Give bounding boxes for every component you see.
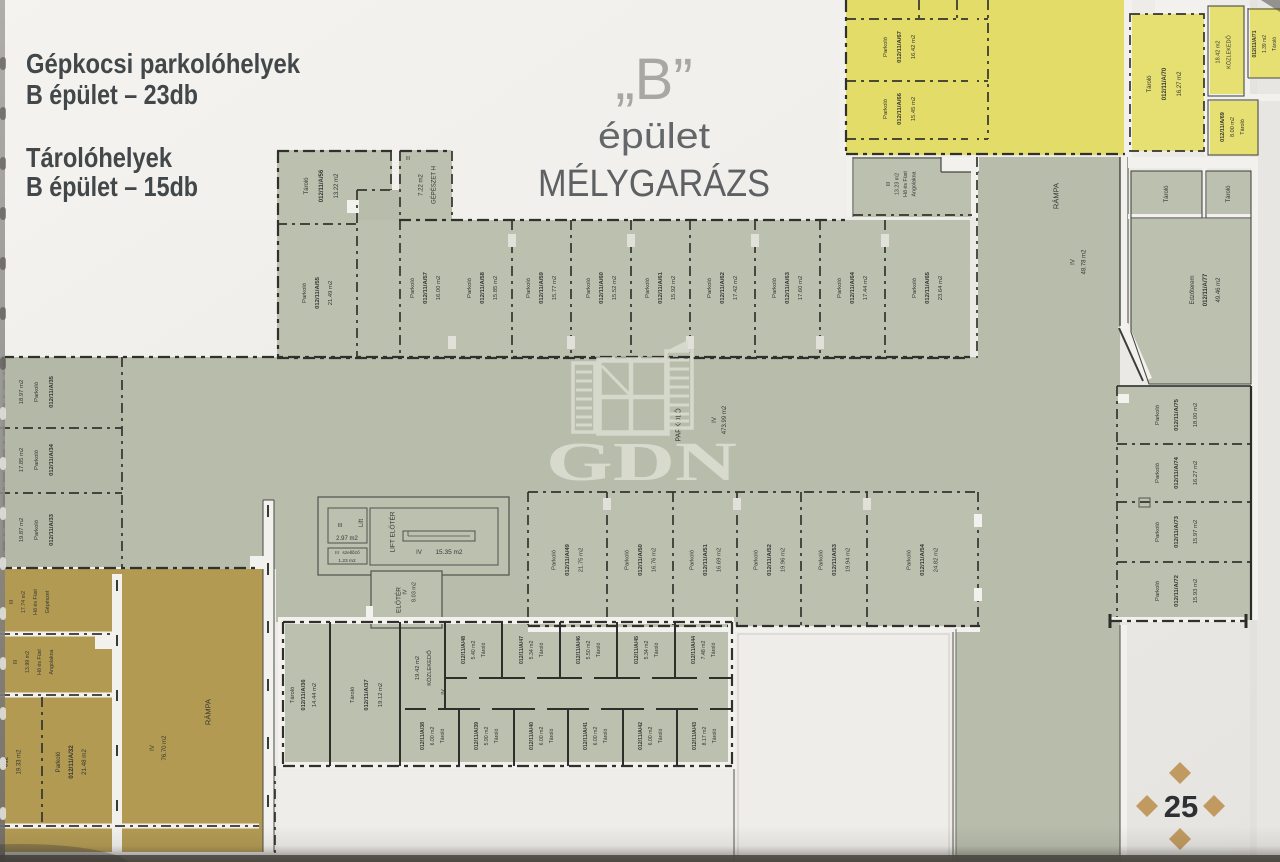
svg-text:012/11/A/73: 012/11/A/73: [1174, 515, 1180, 547]
svg-text:RÁMPA: RÁMPA: [204, 699, 213, 725]
svg-text:Hő és Füst: Hő és Füst: [37, 649, 43, 675]
svg-text:012/11/A/75: 012/11/A/75: [1174, 398, 1180, 430]
svg-text:012/11/A/72: 012/11/A/72: [1174, 574, 1180, 606]
svg-text:Parkoló: Parkoló: [754, 549, 760, 570]
svg-text:15.77 m2: 15.77 m2: [552, 276, 558, 301]
svg-text:Angolakna: Angolakna: [912, 171, 918, 196]
svg-text:012/11/A/54: 012/11/A/54: [920, 543, 926, 575]
svg-text:Parkoló: Parkoló: [526, 277, 532, 298]
svg-text:15.52 m2: 15.52 m2: [612, 276, 618, 301]
svg-text:012/11/A/57: 012/11/A/57: [423, 271, 429, 303]
svg-text:012/11/A/50: 012/11/A/50: [638, 543, 644, 575]
svg-text:1.39 m2: 1.39 m2: [1262, 35, 1268, 53]
svg-text:GDN: GDN: [546, 431, 737, 492]
svg-text:8.00 m2: 8.00 m2: [1230, 117, 1236, 137]
svg-text:012/11/A/66: 012/11/A/66: [897, 92, 903, 124]
svg-text:15.85 m2: 15.85 m2: [493, 276, 499, 301]
svg-text:012/11/A/37: 012/11/A/37: [364, 679, 370, 710]
svg-text:473.99 m2: 473.99 m2: [722, 405, 728, 434]
svg-text:III: III: [886, 182, 892, 186]
svg-text:21.49 m2: 21.49 m2: [328, 281, 334, 306]
svg-text:012/11/A/46: 012/11/A/46: [576, 636, 582, 664]
svg-text:Tároló: Tároló: [1272, 37, 1278, 51]
svg-text:6.00 m2: 6.00 m2: [648, 727, 654, 746]
svg-text:012/11/A/45: 012/11/A/45: [634, 636, 640, 664]
svg-text:Tároló: Tároló: [539, 643, 545, 658]
svg-text:19.12 m2: 19.12 m2: [378, 683, 384, 707]
svg-text:Parkoló: Parkoló: [302, 282, 308, 303]
svg-text:Parkoló: Parkoló: [645, 277, 651, 298]
svg-text:16.76 m2: 16.76 m2: [652, 548, 658, 573]
svg-text:Hő és Füst: Hő és Füst: [903, 171, 909, 197]
svg-text:21.48 m2: 21.48 m2: [81, 749, 88, 775]
svg-text:Gépkocsi parkolóhelyek: Gépkocsi parkolóhelyek: [26, 48, 300, 79]
svg-text:012/11/A/34: 012/11/A/34: [49, 443, 55, 475]
svg-text:19.94 m2: 19.94 m2: [846, 548, 852, 573]
svg-text:Tároló: Tároló: [1226, 185, 1232, 203]
svg-text:III: III: [338, 523, 343, 529]
svg-text:Tároló: Tároló: [1147, 75, 1153, 93]
svg-text:Parkoló: Parkoló: [586, 277, 592, 298]
svg-text:012/11/A/43: 012/11/A/43: [692, 722, 698, 750]
svg-text:Parkoló: Parkoló: [34, 519, 40, 540]
svg-text:13.22 m2: 13.22 m2: [334, 173, 340, 199]
svg-text:012/11/A/38: 012/11/A/38: [420, 722, 426, 750]
svg-text:012/11/A/55: 012/11/A/55: [315, 276, 321, 308]
svg-text:17.42 m2: 17.42 m2: [733, 276, 739, 301]
svg-text:76.70 m2: 76.70 m2: [162, 735, 168, 761]
svg-text:Parkoló: Parkoló: [55, 751, 62, 773]
svg-text:17.74 m2: 17.74 m2: [21, 591, 27, 613]
svg-text:III: III: [9, 600, 15, 604]
svg-text:012/11/A/47: 012/11/A/47: [519, 636, 525, 664]
svg-text:Tároló: Tároló: [1164, 185, 1170, 203]
svg-text:III: III: [406, 156, 410, 162]
svg-text:012/11/A/65: 012/11/A/65: [925, 271, 931, 303]
svg-text:Parkoló: Parkoló: [625, 549, 631, 570]
svg-text:IV: IV: [402, 589, 408, 595]
svg-text:Parkoló: Parkoló: [552, 549, 558, 570]
svg-text:15.93 m2: 15.93 m2: [1193, 579, 1199, 604]
svg-text:5.34 m2: 5.34 m2: [644, 641, 650, 660]
svg-text:19.42 m2: 19.42 m2: [415, 656, 421, 680]
svg-text:5.90 m2: 5.90 m2: [484, 727, 490, 746]
svg-text:szellőző: szellőző: [342, 550, 360, 556]
svg-text:8.03 m2: 8.03 m2: [411, 582, 417, 602]
svg-text:012/11/A/32: 012/11/A/32: [68, 745, 75, 779]
svg-text:Tároló: Tároló: [1240, 119, 1246, 135]
svg-text:Parkoló: Parkoló: [837, 277, 843, 298]
svg-text:012/11/A/77: 012/11/A/77: [1203, 273, 1209, 306]
svg-text:„B”: „B”: [615, 47, 692, 112]
svg-text:IV: IV: [1071, 259, 1077, 265]
svg-text:012/11/A/33: 012/11/A/33: [49, 513, 55, 545]
svg-text:Parkoló: Parkoló: [1155, 462, 1161, 483]
svg-text:Parkoló: Parkoló: [467, 277, 473, 298]
svg-text:Tároló: Tároló: [549, 729, 555, 744]
svg-text:2.97 m2: 2.97 m2: [336, 536, 358, 542]
svg-text:Tároló: Tároló: [711, 643, 717, 658]
svg-text:012/11/A/62: 012/11/A/62: [720, 271, 726, 303]
svg-text:012/11/A/42: 012/11/A/42: [638, 722, 644, 750]
svg-text:Parkoló: Parkoló: [912, 277, 918, 298]
svg-text:49.46 m2: 49.46 m2: [1216, 277, 1222, 303]
svg-text:Tároló: Tároló: [712, 729, 718, 744]
svg-text:Parkoló: Parkoló: [1155, 521, 1161, 542]
svg-text:012/11/A/58: 012/11/A/58: [480, 271, 486, 303]
svg-text:Tároló: Tároló: [603, 729, 609, 744]
svg-text:012/11/A/40: 012/11/A/40: [529, 722, 535, 750]
svg-text:Parkoló: Parkoló: [1155, 580, 1161, 601]
svg-text:16.00 m2: 16.00 m2: [436, 276, 442, 301]
svg-text:15.92 m2: 15.92 m2: [671, 276, 677, 301]
svg-text:III: III: [13, 660, 19, 664]
svg-text:Parkoló: Parkoló: [34, 381, 40, 402]
svg-text:Parkoló: Parkoló: [707, 277, 713, 298]
svg-text:012/11/A/52: 012/11/A/52: [767, 543, 773, 575]
svg-text:Tároló: Tároló: [481, 643, 487, 658]
svg-text:Tárolóhelyek: Tárolóhelyek: [26, 142, 172, 173]
svg-text:16.27 m2: 16.27 m2: [1193, 461, 1199, 486]
svg-text:IV: IV: [712, 417, 718, 423]
svg-text:Hő és Füst: Hő és Füst: [33, 589, 39, 615]
svg-text:Parkoló: Parkoló: [410, 277, 416, 298]
svg-text:III: III: [335, 550, 339, 555]
svg-text:Tároló: Tároló: [350, 687, 356, 703]
svg-text:8.17 m2: 8.17 m2: [702, 727, 708, 746]
svg-text:012/11/A/53: 012/11/A/53: [832, 543, 838, 575]
svg-text:B épület – 23db: B épület – 23db: [26, 79, 198, 110]
svg-text:012/11/A/61: 012/11/A/61: [658, 271, 664, 303]
svg-text:012/11/A/69: 012/11/A/69: [1220, 112, 1226, 142]
svg-text:GÉPÉSZET H: GÉPÉSZET H: [431, 166, 438, 204]
svg-text:1.23 m2: 1.23 m2: [338, 558, 356, 564]
svg-text:RÁMPA: RÁMPA: [1052, 183, 1061, 209]
svg-text:24.82 m2: 24.82 m2: [934, 548, 940, 573]
svg-text:19.96 m2: 19.96 m2: [781, 548, 787, 573]
svg-text:13.23 m2: 13.23 m2: [895, 173, 901, 195]
svg-text:Edzőterem: Edzőterem: [1190, 275, 1196, 304]
svg-text:B épület – 15db: B épület – 15db: [26, 171, 198, 202]
svg-text:012/11/A/48: 012/11/A/48: [461, 636, 467, 664]
svg-text:Tároló: Tároló: [596, 643, 602, 658]
svg-text:13.99 m2: 13.99 m2: [25, 651, 31, 673]
svg-text:IV: IV: [441, 689, 447, 695]
svg-text:012/11/A/51: 012/11/A/51: [703, 543, 709, 575]
svg-text:IV: IV: [150, 745, 156, 751]
svg-text:012/11/A/70: 012/11/A/70: [1162, 67, 1168, 100]
svg-text:Tároló: Tároló: [290, 687, 296, 703]
svg-text:21.75 m2: 21.75 m2: [579, 548, 585, 573]
svg-text:012/11/A/39: 012/11/A/39: [474, 722, 480, 750]
svg-text:KÖZLEKEDŐ: KÖZLEKEDŐ: [1225, 34, 1232, 68]
svg-text:012/11/A/60: 012/11/A/60: [599, 271, 605, 303]
svg-text:épület: épület: [598, 115, 710, 156]
svg-text:6.00 m2: 6.00 m2: [430, 727, 436, 746]
svg-text:012/11/A/71: 012/11/A/71: [1252, 30, 1258, 57]
svg-text:012/11/A/49: 012/11/A/49: [565, 543, 571, 575]
svg-text:18.00 m2: 18.00 m2: [1193, 403, 1199, 428]
svg-text:14.44 m2: 14.44 m2: [312, 683, 318, 707]
svg-text:Tároló: Tároló: [440, 729, 446, 744]
svg-text:Parkoló: Parkoló: [690, 549, 696, 570]
svg-text:7.48 m2: 7.48 m2: [701, 641, 707, 660]
svg-text:17.85 m2: 17.85 m2: [19, 448, 25, 473]
svg-text:15.35 m2: 15.35 m2: [435, 549, 462, 556]
svg-text:Tároló: Tároló: [658, 729, 664, 744]
svg-text:15.97 m2: 15.97 m2: [1193, 520, 1199, 545]
svg-text:Tároló: Tároló: [494, 729, 500, 744]
svg-text:48.78 m2: 48.78 m2: [1082, 249, 1088, 275]
svg-text:012/11/A/36: 012/11/A/36: [301, 679, 307, 711]
svg-text:Tároló: Tároló: [304, 177, 310, 195]
svg-text:Parkoló: Parkoló: [34, 449, 40, 470]
svg-text:012/11/A/56: 012/11/A/56: [319, 169, 325, 202]
svg-text:7.22 m2: 7.22 m2: [419, 174, 425, 196]
svg-text:ELŐTÉR: ELŐTÉR: [393, 587, 402, 613]
svg-text:012/11/A/63: 012/11/A/63: [785, 271, 791, 303]
svg-text:15.45 m2: 15.45 m2: [911, 97, 917, 122]
svg-text:012/11/A/67: 012/11/A/67: [897, 30, 903, 62]
svg-text:5.34 m2: 5.34 m2: [529, 641, 535, 660]
svg-text:16.27 m2: 16.27 m2: [1177, 71, 1183, 97]
svg-text:16.69 m2: 16.69 m2: [717, 548, 723, 573]
svg-text:MÉLYGARÁZS: MÉLYGARÁZS: [538, 162, 770, 205]
svg-text:17.60 m2: 17.60 m2: [798, 276, 804, 301]
svg-text:Gépészet: Gépészet: [45, 590, 51, 613]
svg-text:19.33 m2: 19.33 m2: [17, 749, 23, 775]
svg-text:6.00 m2: 6.00 m2: [593, 727, 599, 746]
svg-text:IV: IV: [416, 550, 422, 556]
svg-text:5.50 m2: 5.50 m2: [586, 641, 592, 660]
svg-text:012/11/A/35: 012/11/A/35: [49, 375, 55, 407]
svg-text:18.42 m2: 18.42 m2: [1215, 41, 1221, 64]
svg-text:012/11/A/74: 012/11/A/74: [1174, 456, 1180, 488]
svg-text:17.44 m2: 17.44 m2: [863, 276, 869, 301]
svg-text:Parkoló: Parkoló: [819, 549, 825, 570]
svg-text:012/11/A/44: 012/11/A/44: [691, 636, 697, 664]
svg-text:5.40 m2: 5.40 m2: [471, 641, 477, 660]
svg-text:19.87 m2: 19.87 m2: [19, 518, 25, 543]
svg-text:16.42 m2: 16.42 m2: [911, 35, 917, 60]
svg-text:LIFT ELŐTÉR: LIFT ELŐTÉR: [387, 511, 396, 552]
svg-text:KÖZLEKEDŐ: KÖZLEKEDŐ: [426, 650, 433, 686]
svg-text:Angolakna: Angolakna: [49, 649, 55, 674]
svg-text:Lift: Lift: [359, 519, 365, 527]
svg-text:Parkoló: Parkoló: [772, 277, 778, 298]
svg-text:Tároló: Tároló: [654, 643, 660, 658]
svg-text:Parkoló: Parkoló: [883, 98, 889, 119]
svg-text:23.64 m2: 23.64 m2: [938, 276, 944, 301]
svg-text:Parkoló: Parkoló: [907, 549, 913, 570]
svg-text:012/11/A/59: 012/11/A/59: [539, 271, 545, 303]
svg-text:Parkoló: Parkoló: [1155, 404, 1161, 425]
svg-text:012/11/A/41: 012/11/A/41: [583, 722, 589, 750]
svg-text:012/11/A/64: 012/11/A/64: [850, 271, 856, 303]
svg-text:Parkoló: Parkoló: [883, 36, 889, 57]
svg-text:18.97 m2: 18.97 m2: [19, 380, 25, 405]
svg-text:25: 25: [1164, 789, 1198, 824]
svg-text:6.00 m2: 6.00 m2: [539, 727, 545, 746]
